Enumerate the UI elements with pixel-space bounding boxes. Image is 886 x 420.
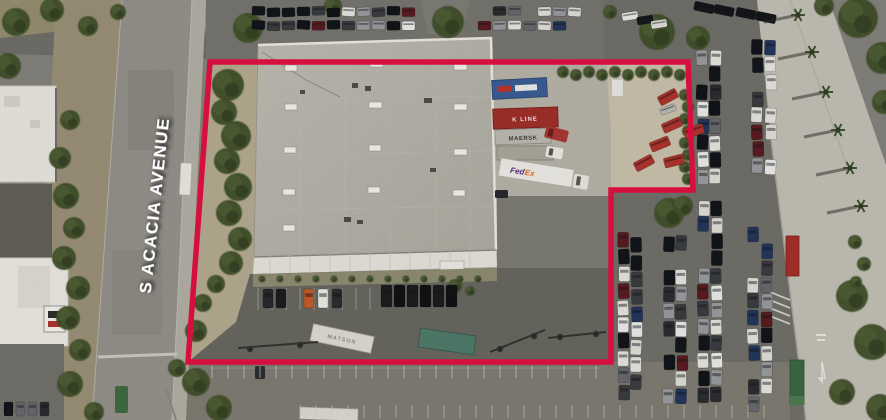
aerial-property-photo: K LINE MAERSK FedEx MATSON — [0, 0, 886, 420]
aerial-scene: K LINE MAERSK FedEx MATSON — [0, 0, 886, 420]
